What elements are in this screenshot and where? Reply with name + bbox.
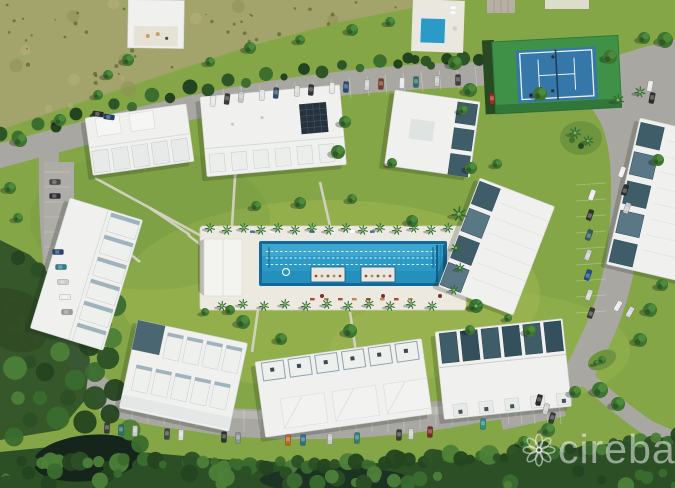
aerial-scene xyxy=(0,0,675,488)
aerial-photo-condo-complex: cireba xyxy=(0,0,675,488)
tennis-court xyxy=(482,33,622,114)
pool-area xyxy=(198,226,466,310)
